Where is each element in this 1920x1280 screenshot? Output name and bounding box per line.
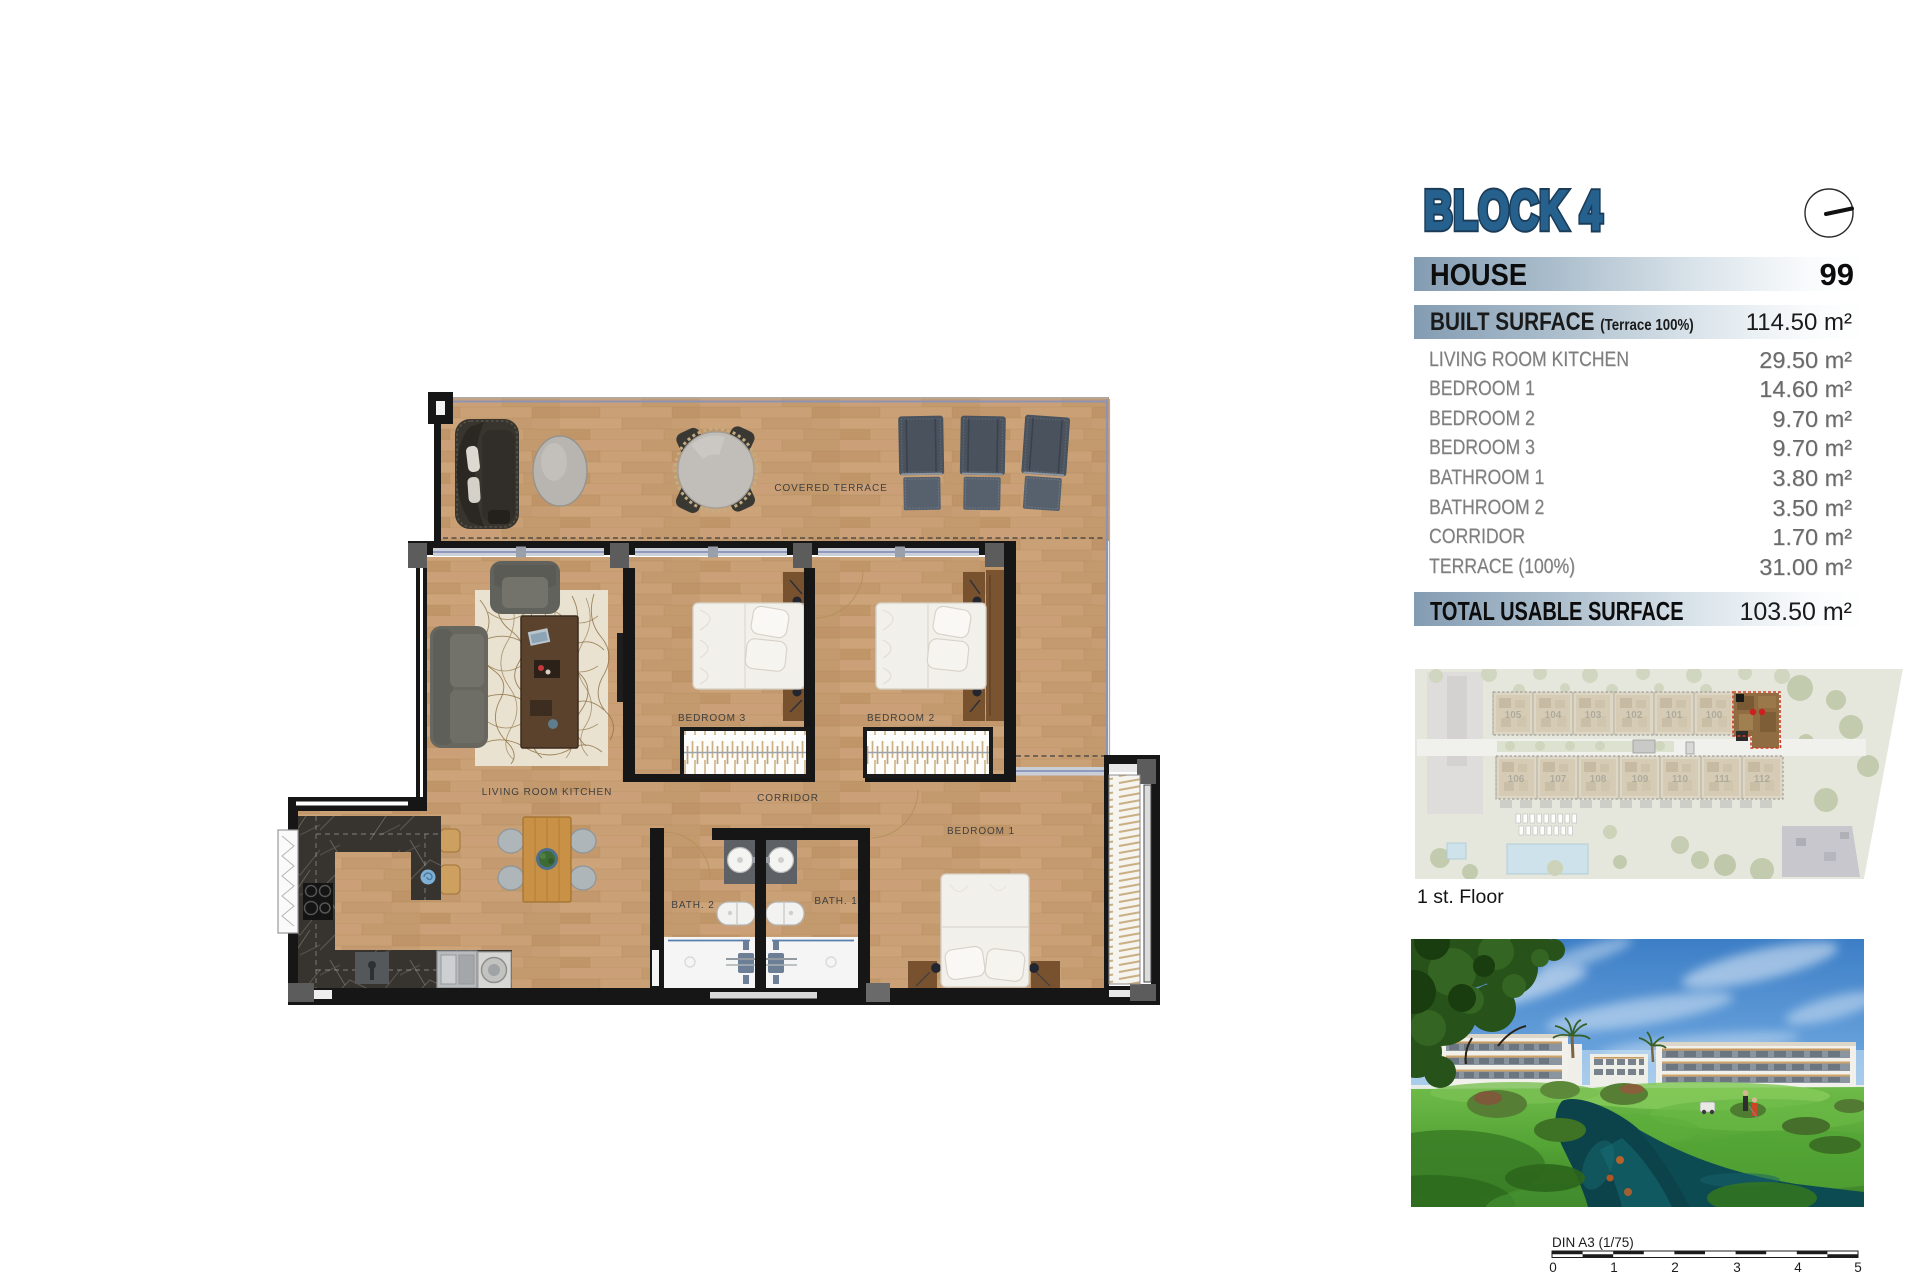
svg-text:111: 111	[1714, 774, 1730, 785]
svg-text:2: 2	[1671, 1260, 1679, 1275]
svg-text:0: 0	[1549, 1260, 1557, 1275]
svg-text:BATH. 2: BATH. 2	[671, 900, 714, 911]
svg-text:CORRIDOR: CORRIDOR	[757, 793, 819, 804]
svg-text:103: 103	[1585, 710, 1602, 721]
svg-text:109: 109	[1632, 774, 1649, 785]
svg-text:BATH. 1: BATH. 1	[814, 896, 857, 907]
svg-text:101: 101	[1666, 710, 1683, 721]
svg-text:BEDROOM 1: BEDROOM 1	[947, 826, 1015, 837]
svg-text:108: 108	[1590, 774, 1607, 785]
svg-text:112: 112	[1754, 774, 1771, 785]
svg-text:104: 104	[1545, 710, 1562, 721]
svg-text:DIN A3 (1/75): DIN A3 (1/75)	[1552, 1235, 1634, 1250]
svg-text:3: 3	[1733, 1260, 1741, 1275]
svg-text:1 st. Floor: 1 st. Floor	[1417, 886, 1504, 908]
svg-text:102: 102	[1626, 710, 1643, 721]
svg-text:100: 100	[1706, 710, 1723, 721]
svg-text:LIVING ROOM KITCHEN: LIVING ROOM KITCHEN	[482, 787, 612, 798]
svg-text:106: 106	[1508, 774, 1525, 785]
svg-text:4: 4	[1794, 1260, 1802, 1275]
svg-text:BEDROOM 3: BEDROOM 3	[678, 713, 746, 724]
svg-text:5: 5	[1854, 1260, 1862, 1275]
svg-text:107: 107	[1550, 774, 1567, 785]
svg-text:110: 110	[1672, 774, 1689, 785]
svg-text:1: 1	[1610, 1260, 1618, 1275]
svg-text:105: 105	[1505, 710, 1522, 721]
svg-text:BEDROOM 2: BEDROOM 2	[867, 713, 935, 724]
svg-text:COVERED TERRACE: COVERED TERRACE	[774, 483, 887, 494]
